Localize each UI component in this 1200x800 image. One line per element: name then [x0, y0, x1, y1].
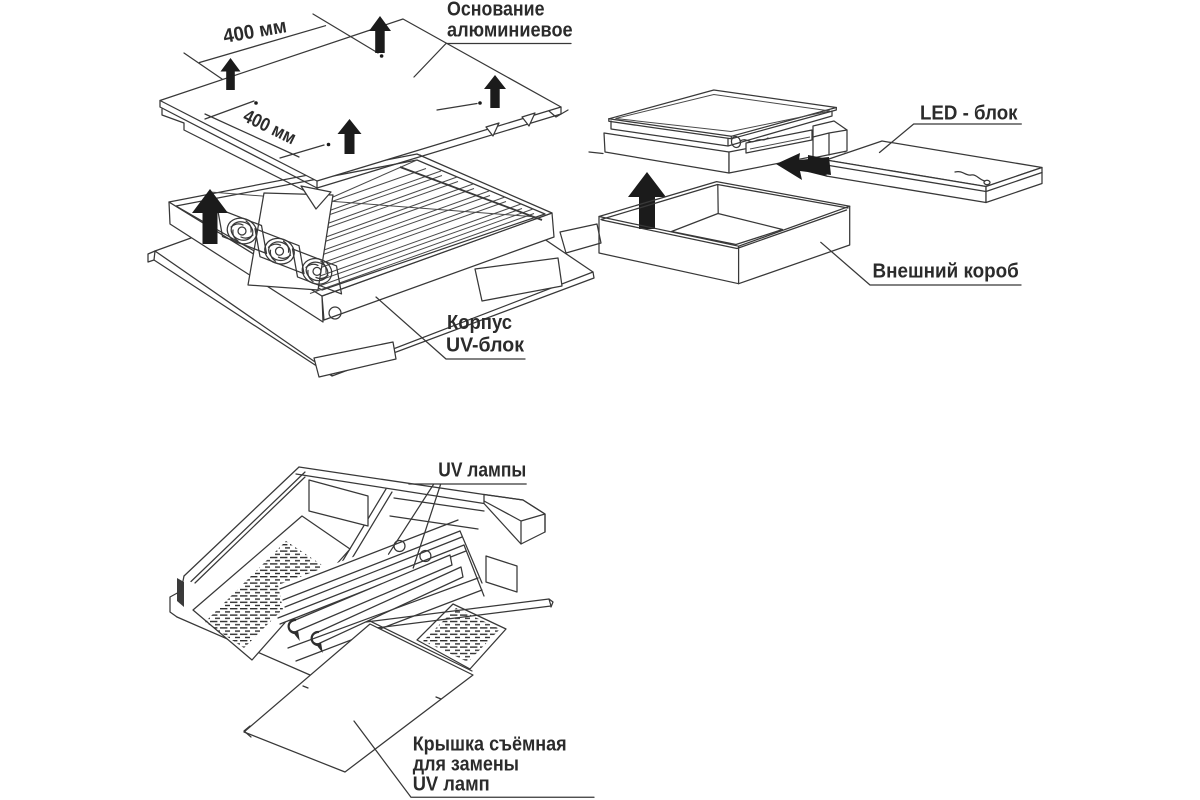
svg-text:UV лампы: UV лампы [438, 459, 526, 481]
svg-text:Корпус: Корпус [447, 312, 512, 334]
svg-text:Внешний короб: Внешний короб [873, 261, 1019, 283]
svg-text:Крышка съёмная: Крышка съёмная [413, 734, 567, 756]
svg-text:LED - блок: LED - блок [920, 103, 1018, 125]
svg-text:UV-блок: UV-блок [446, 335, 525, 357]
svg-text:UV ламп: UV ламп [413, 773, 490, 795]
svg-text:алюминиевое: алюминиевое [447, 19, 573, 41]
svg-text:Основание: Основание [447, 0, 545, 21]
svg-text:для замены: для замены [413, 754, 519, 776]
